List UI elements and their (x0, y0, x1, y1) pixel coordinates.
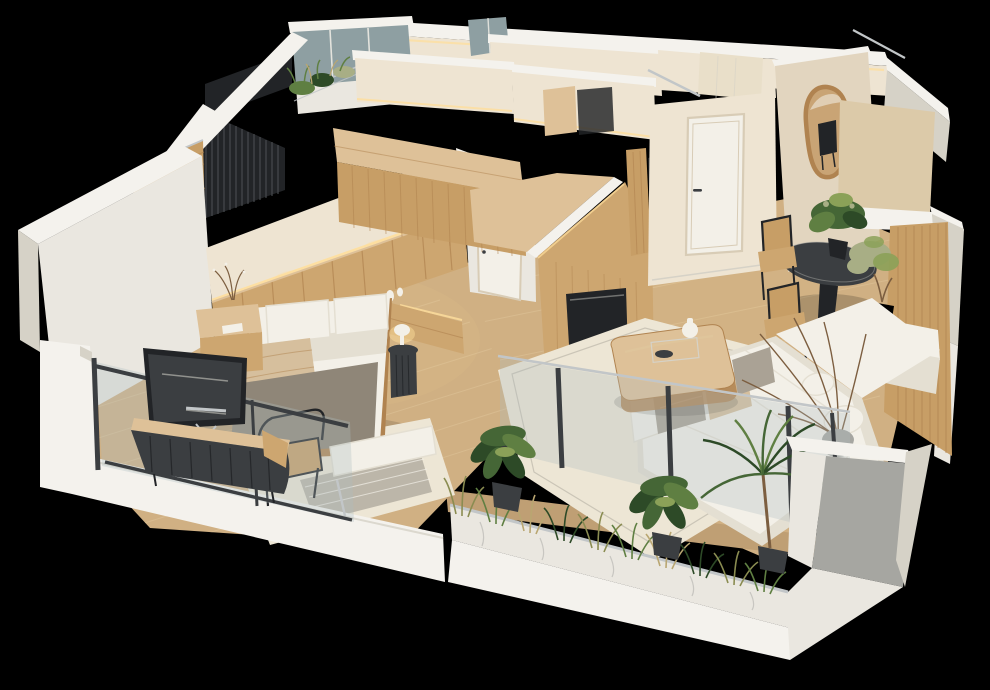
pillow (266, 300, 330, 344)
side-table (388, 324, 418, 398)
bowl (655, 350, 673, 358)
lamp-shade (394, 324, 410, 336)
mirror-reflection-chair (818, 120, 837, 156)
apartment-render (0, 0, 990, 690)
entry-door (686, 114, 744, 255)
door-handle (693, 189, 702, 192)
pillow (334, 294, 388, 335)
tan-wall (838, 100, 935, 214)
isometric-apartment-svg (0, 0, 990, 690)
